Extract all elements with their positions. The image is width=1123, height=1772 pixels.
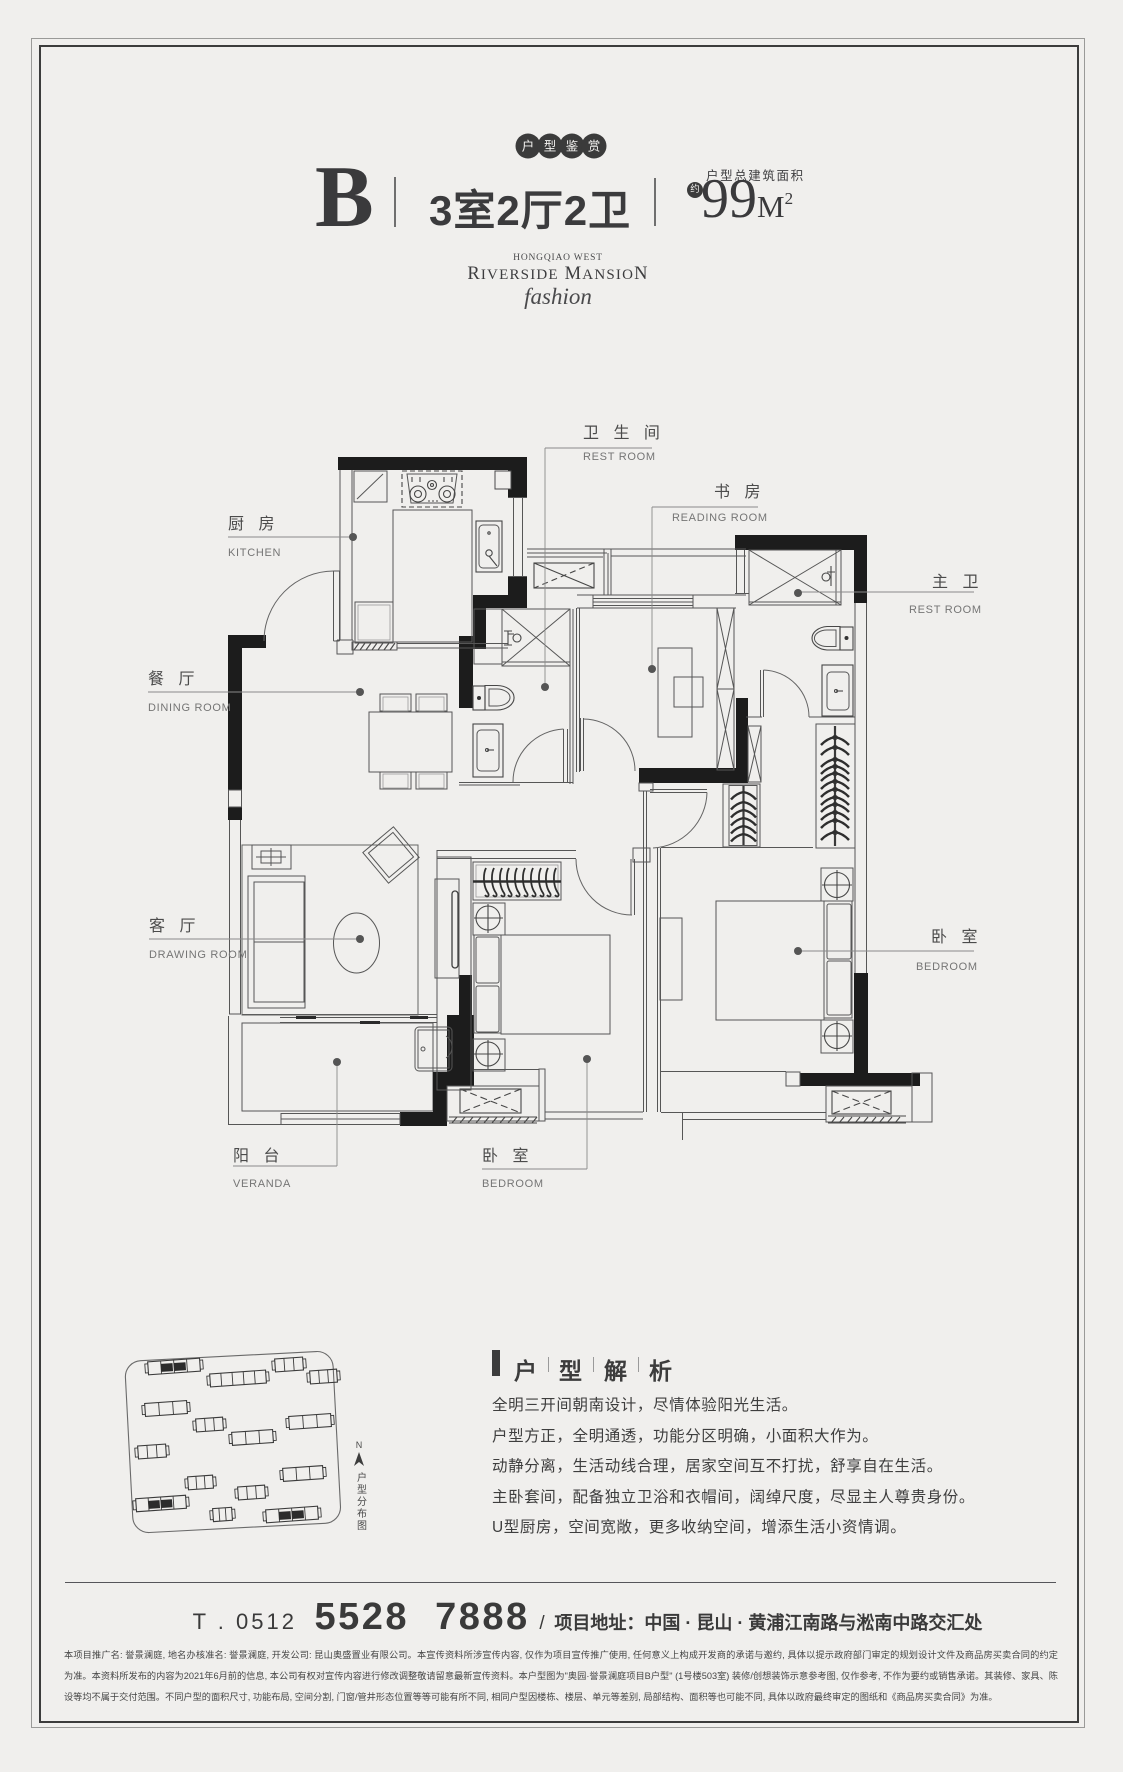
svg-text:分: 分 bbox=[357, 1496, 367, 1508]
svg-text:布: 布 bbox=[357, 1508, 367, 1520]
svg-text:户: 户 bbox=[357, 1471, 367, 1484]
svg-text:N: N bbox=[356, 1440, 363, 1450]
svg-text:图: 图 bbox=[357, 1520, 367, 1532]
svg-text:型: 型 bbox=[357, 1483, 367, 1496]
